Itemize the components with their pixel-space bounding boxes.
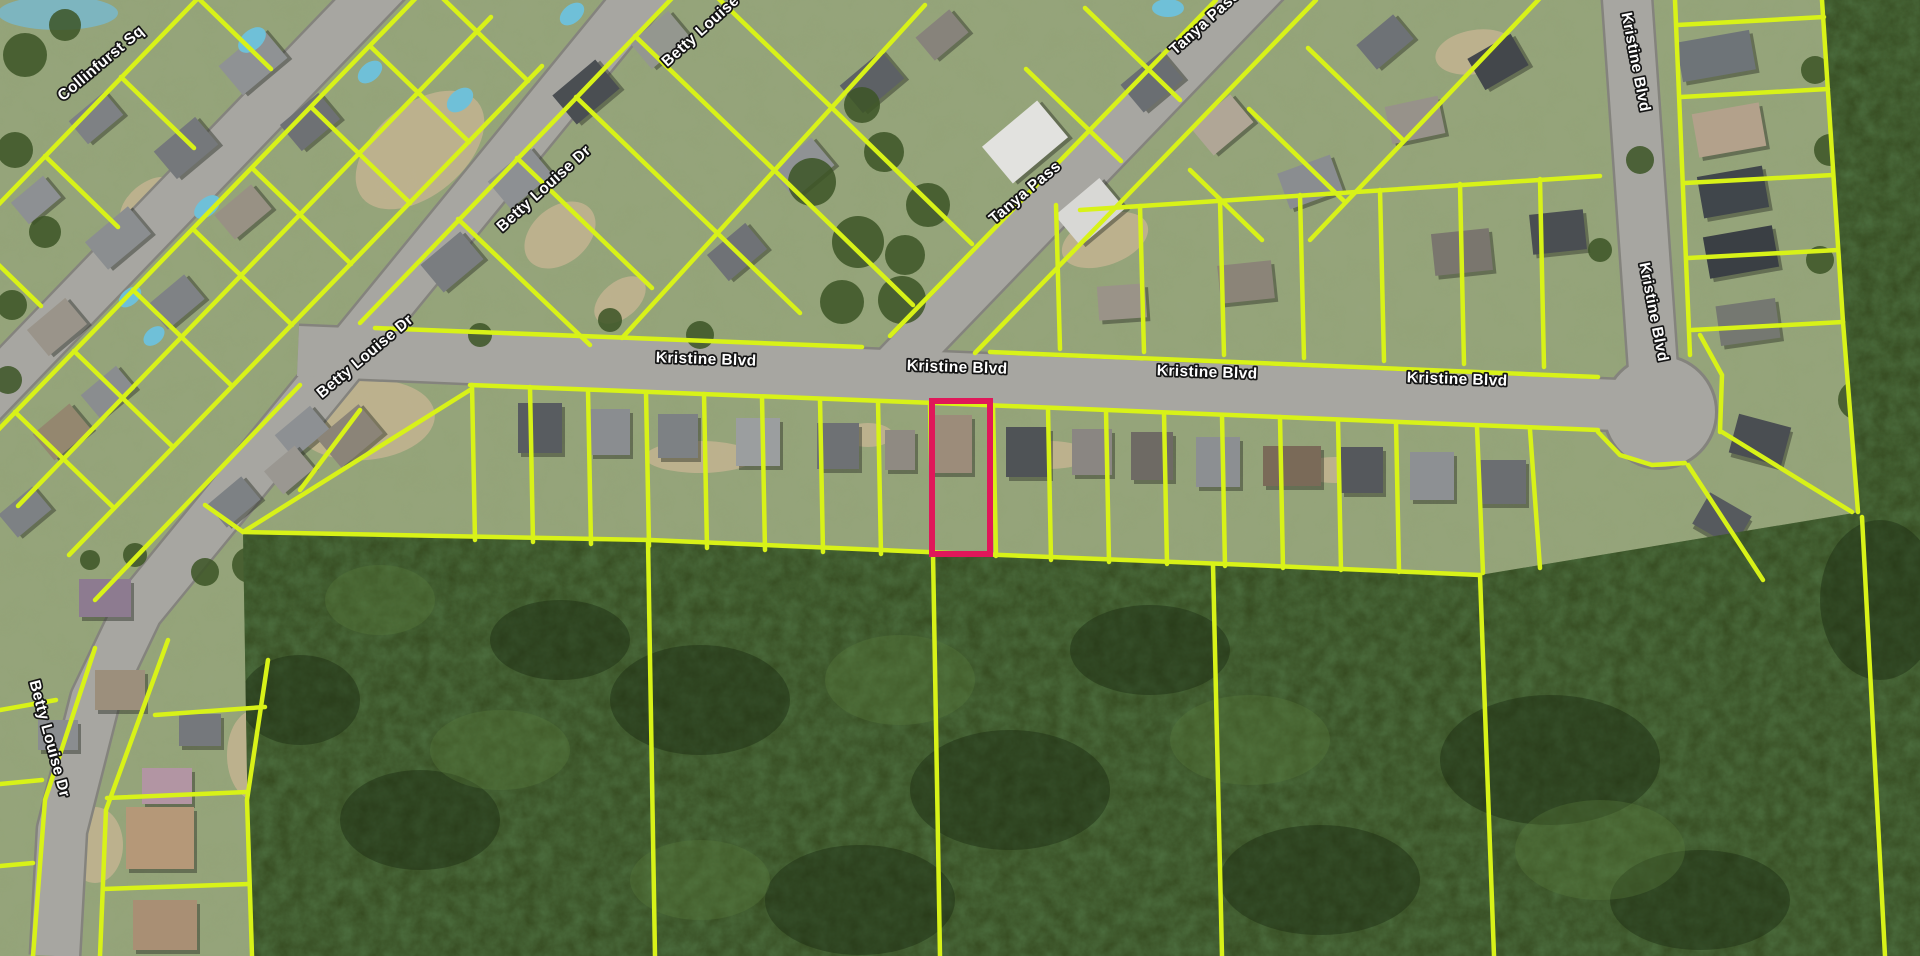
forest-shade [610,645,790,755]
satellite-parcel-map[interactable]: Collinfurst SqBetty Louise DrBetty Louis… [0,0,1920,956]
house-roof [736,418,780,466]
tree-canopy [878,276,926,324]
house-roof [1097,283,1147,320]
house-roof [1217,260,1275,303]
street-label: Kristine Blvd [1406,369,1507,390]
parcel-boundary [993,405,996,556]
parcel-boundary [878,401,881,554]
house-roof [1478,460,1526,504]
tree-canopy [832,216,884,268]
tree-canopy [3,33,47,77]
forest-highlight [325,565,435,635]
parcel-boundary [1396,422,1399,572]
parcel-boundary [704,394,707,548]
parcel-boundary [820,399,823,552]
tree-canopy [80,550,100,570]
tree-canopy [191,558,219,586]
house-roof [179,714,221,746]
house-roof [932,415,972,473]
street-label: Kristine Blvd [655,349,756,370]
parcel-boundary [1222,415,1225,566]
house-roof [658,414,698,458]
parcel-boundary [1164,413,1167,564]
tree-canopy [49,9,81,41]
forest-shade [490,600,630,680]
tree-canopy [1626,146,1654,174]
house-roof [133,900,197,950]
house-roof [1341,447,1383,493]
tree-canopy [906,183,950,227]
house-roof [79,579,131,617]
parcel-boundary [0,863,33,866]
tree-canopy [29,216,61,248]
culdesac [1605,357,1715,467]
tree-canopy [468,323,492,347]
tree-canopy [864,132,904,172]
street-label: Kristine Blvd [906,357,1007,378]
forest-highlight [430,710,570,790]
house-roof [1410,452,1454,500]
forest-shade [1220,825,1420,935]
forest-shade [765,845,955,955]
parcel-boundary [530,387,533,542]
forest-shade [1070,605,1230,695]
house-roof [885,430,915,470]
street-label: Kristine Blvd [1156,362,1257,383]
house-roof [1716,298,1781,346]
parcel-boundary [762,397,765,550]
parcel-boundary [1048,408,1051,560]
house-roof [1263,446,1321,486]
forest-highlight [1170,695,1330,785]
tree-canopy [844,87,880,123]
tree-canopy [686,321,714,349]
tree-canopy [788,158,836,206]
parcel-boundary [1280,417,1283,568]
tree-canopy [1588,238,1612,262]
house-roof [95,670,145,710]
house-roof [590,409,630,455]
parcel-boundary [1106,410,1109,562]
house-roof [1529,209,1587,254]
tree-canopy [885,235,925,275]
forest-highlight [825,635,975,725]
tree-canopy [820,280,864,324]
forest-highlight [1515,800,1685,900]
house-roof [518,403,562,453]
house-roof [1196,437,1240,487]
house-roof [126,807,194,869]
map-canvas[interactable]: Collinfurst SqBetty Louise DrBetty Louis… [0,0,1920,956]
tree-canopy [598,308,622,332]
house-roof [1006,427,1050,477]
parcel-boundary [646,392,649,546]
parcel-boundary [588,390,591,544]
house-roof [142,768,192,804]
parcel-boundary [472,385,475,540]
parcel-boundary [1338,420,1341,570]
